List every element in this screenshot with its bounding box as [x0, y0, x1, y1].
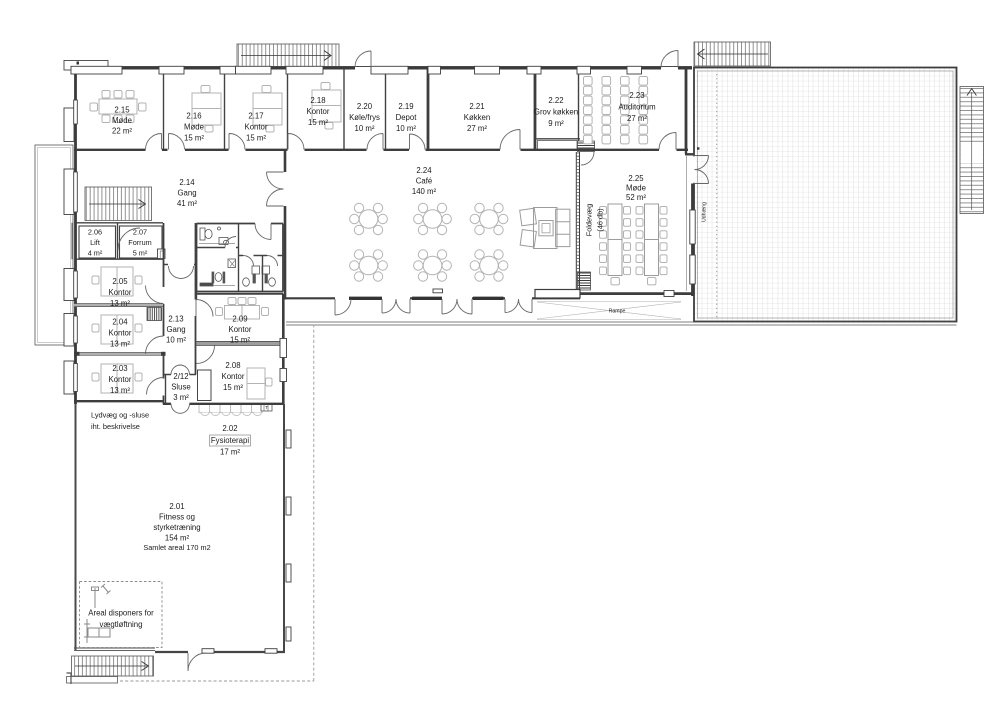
svg-text:2.22: 2.22	[548, 96, 563, 105]
svg-text:154 m²: 154 m²	[165, 534, 190, 543]
svg-text:Kontor: Kontor	[245, 123, 268, 132]
svg-text:10 m²: 10 m²	[396, 124, 416, 133]
svg-text:Foldevæg: Foldevæg	[585, 204, 594, 236]
svg-text:41 m²: 41 m²	[177, 199, 197, 208]
svg-text:Lydvæg og -sluse: Lydvæg og -sluse	[91, 411, 149, 420]
svg-text:styrketræning: styrketræning	[153, 523, 200, 532]
svg-text:Udhæng: Udhæng	[702, 202, 708, 222]
svg-text:Kontor: Kontor	[222, 372, 245, 381]
svg-text:Areal disponers for: Areal disponers for	[88, 609, 154, 618]
svg-text:2.18: 2.18	[310, 96, 325, 105]
svg-text:iht. beskrivelse: iht. beskrivelse	[91, 422, 140, 431]
svg-text:Køle/frys: Køle/frys	[349, 113, 380, 122]
svg-text:T: T	[265, 405, 268, 410]
svg-text:2.05: 2.05	[112, 277, 128, 286]
svg-text:2.16: 2.16	[186, 112, 201, 121]
svg-text:5 m²: 5 m²	[133, 249, 148, 258]
svg-text:15 m²: 15 m²	[230, 336, 250, 345]
svg-text:Kontor: Kontor	[307, 107, 330, 116]
svg-text:vægtløftning: vægtløftning	[100, 620, 143, 629]
svg-text:15 m²: 15 m²	[246, 134, 266, 143]
svg-text:Café: Café	[416, 177, 432, 186]
svg-text:2.24: 2.24	[416, 166, 432, 175]
svg-text:2.15: 2.15	[114, 106, 130, 115]
svg-text:2.02: 2.02	[222, 424, 237, 433]
svg-text:Fitness og: Fitness og	[159, 513, 195, 522]
svg-text:Møde: Møde	[184, 123, 204, 132]
svg-text:22 m²: 22 m²	[112, 127, 132, 136]
svg-text:Kontor: Kontor	[109, 375, 132, 384]
svg-text:2.04: 2.04	[112, 318, 128, 327]
svg-text:2.06: 2.06	[88, 228, 102, 237]
svg-text:10 m²: 10 m²	[166, 336, 186, 345]
svg-text:2.14: 2.14	[179, 178, 195, 187]
svg-text:140 m²: 140 m²	[412, 187, 437, 196]
svg-text:Auditorium: Auditorium	[618, 103, 655, 112]
svg-text:13 m²: 13 m²	[110, 299, 130, 308]
svg-text:2.13: 2.13	[168, 315, 183, 324]
svg-text:2.25: 2.25	[628, 174, 644, 183]
svg-text:2.01: 2.01	[169, 502, 184, 511]
svg-text:Kontor: Kontor	[229, 325, 252, 334]
svg-text:Rampe: Rampe	[609, 309, 626, 315]
svg-text:27 m²: 27 m²	[627, 114, 647, 123]
svg-text:2.03: 2.03	[112, 364, 127, 373]
svg-text:2.17: 2.17	[248, 112, 263, 121]
svg-text:Fysioterapi: Fysioterapi	[211, 436, 249, 445]
svg-text:(46 db): (46 db)	[596, 208, 605, 231]
svg-text:Kontor: Kontor	[109, 288, 132, 297]
svg-text:17 m²: 17 m²	[220, 448, 240, 457]
svg-text:Samlet areal 170 m2: Samlet areal 170 m2	[143, 543, 210, 552]
svg-text:2.19: 2.19	[398, 102, 413, 111]
svg-text:Grov køkken: Grov køkken	[534, 108, 578, 117]
svg-text:15 m²: 15 m²	[223, 383, 243, 392]
svg-text:2.08: 2.08	[225, 361, 240, 370]
svg-text:Gang: Gang	[177, 189, 196, 198]
svg-text:15 m²: 15 m²	[184, 134, 204, 143]
svg-text:Gang: Gang	[166, 325, 185, 334]
svg-text:Lift: Lift	[90, 238, 100, 247]
svg-text:Køkken: Køkken	[464, 113, 490, 122]
svg-text:3 m²: 3 m²	[173, 393, 189, 402]
svg-text:Møde: Møde	[626, 184, 646, 193]
svg-text:10 m²: 10 m²	[355, 124, 375, 133]
svg-text:Møde: Møde	[112, 116, 132, 125]
svg-text:15 m²: 15 m²	[308, 118, 328, 127]
svg-text:2.23: 2.23	[629, 91, 644, 100]
svg-text:2.20: 2.20	[357, 102, 373, 111]
svg-text:Depot: Depot	[396, 113, 418, 122]
svg-text:4 m²: 4 m²	[88, 249, 103, 258]
svg-text:2.21: 2.21	[469, 102, 484, 111]
svg-text:9 m²: 9 m²	[548, 119, 564, 128]
svg-text:13 m²: 13 m²	[110, 340, 130, 349]
svg-text:Kontor: Kontor	[109, 329, 132, 338]
svg-text:Forrum: Forrum	[128, 238, 152, 247]
svg-text:13 m²: 13 m²	[110, 386, 130, 395]
svg-text:Sluse: Sluse	[171, 383, 191, 392]
svg-text:52 m²: 52 m²	[626, 193, 646, 202]
svg-text:2.07: 2.07	[133, 228, 147, 237]
svg-text:2/12: 2/12	[173, 372, 188, 381]
svg-text:2.09: 2.09	[232, 315, 247, 324]
svg-text:27 m²: 27 m²	[467, 124, 487, 133]
